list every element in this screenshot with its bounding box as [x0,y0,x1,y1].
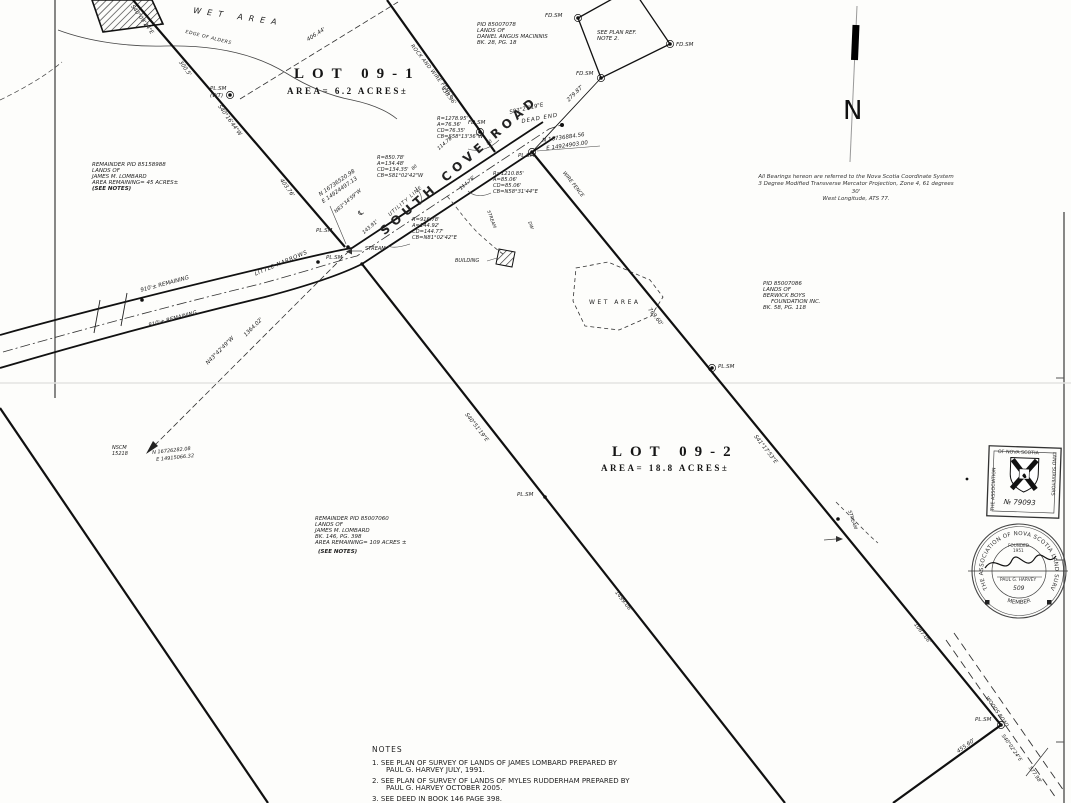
notes-block: NOTES 1. SEE PLAN OF SURVEY OF LANDS OF … [372,746,630,803]
lot1-title: LOT 09-1 [294,66,421,83]
marker-fdsm-3: FD.SM [576,71,593,77]
stream-west-label: STREAM [365,247,386,253]
building-symbol [487,249,515,267]
survey-plan-sheet: THE ASSOCIATION OF NOVA SCOTIA LAND SURV… [0,0,1071,803]
marker-plsm-f: PL.SM [517,492,533,498]
dashed-ties [146,2,1064,798]
round-seal-number: 509 [1013,585,1024,592]
marker-fdsm-2: FD.SM [676,42,693,48]
marker-fdsm-1: FD.SM [545,13,562,19]
round-seal-name: PAUL G. HARVEY [1000,578,1036,583]
round-seal-member-text: MEMBER [1006,598,1031,606]
nscm-number: 15218 [112,452,128,458]
north-arrow [850,6,857,162]
round-seal-year: 1951 [1013,548,1024,553]
lot1-area: AREA= 6.2 ACRES± [287,86,408,96]
remaining-ticks [94,293,127,333]
marker-plsm-north: PL.SM [316,228,332,234]
notes-title: NOTES [372,746,630,754]
marker-plsm-south: PL.SM [326,255,342,261]
marker-plsm-wt: PL.SM [210,86,226,92]
north-letter: N [843,96,862,126]
svg-text:MEMBER: MEMBER [1006,598,1031,606]
marker-plsm-east: PL.SM [718,364,734,370]
parcel-lombard-west: REMAINDER PID 85158988 LANDS OF JAMES M.… [92,162,178,192]
survey-monuments [140,14,1004,728]
marker-plsm-corner: PL.SM [975,717,991,723]
lot2-area: AREA= 18.8 ACRES± [601,463,729,473]
curve-c3: R=1210.85'A=85.06' CD=85.06'CB=N58°31'44… [493,171,538,195]
curve-c4: R=916.78'A=144.92' CD=144.77'CB=N81°02'4… [412,217,457,241]
svg-text:THE ASSOCIATION OF NOVA SCOTIA: THE ASSOCIATION OF NOVA SCOTIA LAND SURV… [0,0,1059,592]
round-seal-rim-text: THE ASSOCIATION OF NOVA SCOTIA LAND SURV… [0,0,1059,592]
curve-c1: R=1278.95'A=76.36' CD=76.35'CB=S58°13'36… [437,116,483,140]
parcel-macinnis: PID 85007078 LANDS OF DANIEL ANGUS MACIN… [477,22,548,46]
square-seal-number: № 79093 [1004,498,1036,507]
marker-wt: (WT) [210,93,223,99]
building-label: BUILDING [455,259,479,265]
reference-parcel [532,0,670,152]
wet-area-east-label: WET AREA [589,300,640,307]
parcel-berwick: PID 85007086 LANDS OF BERWICK BOYS FOUND… [763,281,821,311]
see-plan-ref: SEE PLAN REF. NOTE 2. [597,30,637,42]
parcel-lombard-south: REMAINDER PID 85007060 LANDS OF JAMES M.… [315,516,406,555]
marker-plsm-roadend: PL.SM [518,153,534,159]
lot2-title: LOT 09-2 [612,444,739,461]
bearings-note: All Bearings hereon are referred to the … [756,174,956,204]
wet-area-topleft [0,0,397,119]
